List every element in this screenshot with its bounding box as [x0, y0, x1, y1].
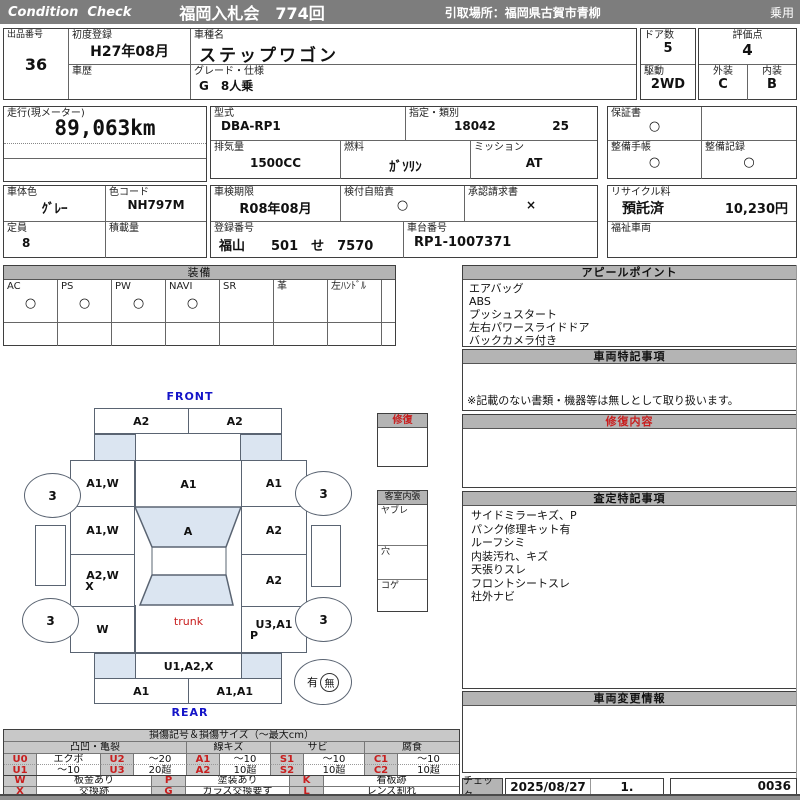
appeal-item: エアバッグ: [469, 282, 790, 295]
warranty-cell: 保証書 ○: [608, 107, 702, 140]
first-registration-label: 初度登録: [69, 29, 190, 41]
legend-desc: ～10: [398, 754, 459, 765]
maintenance-record-label: 整備記録: [702, 141, 796, 153]
change-info-title: 車両変更情報: [463, 692, 796, 706]
capacity-value: 8: [4, 236, 105, 250]
documents-table: 保証書 ○ 整備手帳 ○ 整備記録 ○: [607, 106, 797, 179]
check-count: 1.: [591, 779, 663, 794]
color-code-cell: 色コード NH797M: [106, 186, 206, 221]
panel-right-front-door: A2: [241, 506, 307, 555]
history-label: 車歴: [69, 65, 190, 77]
windshield-roof-rearwindow: A: [130, 505, 246, 610]
equipment-col-lhd: 左ﾊﾝﾄﾞﾙ: [328, 280, 382, 346]
equipment-table: 装備 AC ○ PS ○ PW ○: [3, 265, 396, 346]
equipment-label: NAVI: [166, 280, 219, 292]
legend-code: C1: [365, 754, 398, 765]
equipment-col-empty: [382, 280, 395, 346]
diagram-rear-label: REAR: [150, 706, 230, 719]
fuel-value: ｶﾞｿﾘﾝ: [341, 156, 470, 175]
rear-corner-left: [94, 653, 136, 679]
approval-value: ×: [465, 198, 597, 212]
insurance-value: ○: [341, 198, 464, 213]
lot-number-label: 出品番号: [4, 29, 68, 41]
color-code-label: 色コード: [106, 186, 206, 198]
equipment-col-navi: NAVI ○: [166, 280, 220, 346]
tire-front-right: 3: [295, 471, 352, 516]
inspection-cell: 車検期限 R08年08月: [211, 186, 341, 221]
equipment-label: PW: [112, 280, 165, 292]
registration-label: 登録番号: [211, 222, 403, 234]
score-table: 評価点 4 外装 C 内装 B: [698, 28, 797, 100]
vehicle-category: 乗用: [770, 4, 794, 21]
appeal-item: プッシュスタート: [469, 308, 790, 321]
inspection-label: 車検期限: [211, 186, 340, 198]
equipment-label: 左ﾊﾝﾄﾞﾙ: [328, 280, 381, 292]
cabin-lining-box: 客室内張 ヤブレ 穴 コゲ: [377, 490, 428, 612]
check-date: 2025/08/27: [506, 779, 591, 794]
repair-history-marker: 有 無: [294, 659, 352, 705]
legend-group-scratch: 線キズ: [187, 742, 271, 753]
body-color-cell: 車体色 ｸﾞﾚｰ: [4, 186, 106, 221]
score-label: 評価点: [699, 29, 796, 41]
legend-desc: ～10: [220, 754, 271, 765]
legend-desc: エクボ: [37, 754, 101, 765]
recycle-table: リサイクル料 預託済 10,230円 福祉車両: [607, 185, 797, 258]
auction-title: 福岡入札会 774回: [179, 0, 324, 24]
sheet-number-box: 0036: [670, 778, 797, 795]
cabin-row-tear: ヤブレ: [378, 505, 427, 517]
appeal-points-section: アピールポイント エアバッグ ABS プッシュスタート 左右パワースライドドア …: [462, 265, 797, 347]
auction-condition-sheet: Condition Check 福岡入札会 774回 引取場所：福岡県古賀市青柳…: [0, 0, 800, 800]
legend-code: U2: [101, 754, 134, 765]
transmission-cell: ミッション AT: [471, 141, 597, 179]
assessment-item: パンク修理キット有: [471, 523, 788, 537]
repair-history-yes: 有: [307, 674, 318, 690]
repair-content-section: 修復内容: [462, 414, 797, 488]
load-label: 積載量: [106, 222, 206, 234]
panel-code: U3,A1: [256, 619, 293, 630]
recycle-label: リサイクル料: [608, 186, 796, 198]
doors-label: ドア数: [641, 29, 695, 41]
panel-rear-bumper-left: A1: [94, 678, 188, 704]
model-code-cell: 型式 DBA-RP1: [211, 107, 406, 140]
equipment-label: AC: [4, 280, 57, 292]
equipment-label: SR: [220, 280, 273, 292]
odometer-box: 走行(現メーター) 89,063km: [3, 106, 207, 182]
interior-grade-value: B: [748, 77, 796, 92]
exterior-grade-label: 外装: [699, 65, 747, 77]
model-code-value: DBA-RP1: [211, 119, 405, 133]
appeal-item: 左右パワースライドドア: [469, 321, 790, 334]
color-code-value: NH797M: [106, 198, 206, 212]
page-right-border: [796, 265, 797, 778]
diagram-front-label: FRONT: [150, 390, 230, 403]
windshield-code: A: [184, 525, 193, 538]
legend-group-corrosion: 腐食: [365, 742, 459, 753]
maintenance-record-value: ○: [702, 155, 796, 170]
rear-window-shape: [140, 575, 233, 605]
front-bumper: A2 A2: [94, 408, 282, 434]
warranty-value: ○: [608, 119, 701, 134]
special-notes-title: 車両特記事項: [463, 350, 796, 364]
model-code-label: 型式: [211, 107, 405, 119]
lot-number-value: 36: [4, 55, 68, 74]
legend-desc: 塗装あり: [186, 776, 290, 786]
displacement-label: 排気量: [211, 141, 340, 153]
legend-group-rust: サビ: [271, 742, 365, 753]
panel-rear-bumper-right: A1,A1: [188, 678, 283, 704]
cabin-row-burn: コゲ: [378, 580, 427, 592]
equipment-col-ps: PS ○: [58, 280, 112, 346]
panel-front-bumper-left: A2: [94, 408, 188, 434]
legend-code: K: [290, 776, 324, 786]
equipment-col-sr: SR: [220, 280, 274, 346]
assessment-notes-section: 査定特記事項 サイドミラーキズ、P パンク修理キット有 ルーフシミ 内装汚れ、キ…: [462, 491, 797, 689]
class-category: 25: [552, 119, 569, 133]
trunk-label: trunk: [136, 615, 241, 628]
score-value: 4: [699, 41, 796, 59]
grade-value: G 8人乗: [191, 77, 636, 94]
assessment-notes-title: 査定特記事項: [463, 492, 796, 506]
capacity-cell: 定員 8: [4, 222, 106, 258]
legend-code: W: [4, 776, 37, 786]
check-date-box: 2025/08/27 1.: [505, 778, 664, 795]
drive-value: 2WD: [641, 77, 695, 92]
first-registration-value: H27年08月: [69, 41, 190, 61]
repair-mini-box: 修復: [377, 413, 428, 467]
equipment-label: 革: [274, 280, 327, 292]
equipment-label: PS: [58, 280, 111, 292]
panel-left-rear-door: A2,W X: [70, 554, 135, 607]
legend-desc: 板金あり: [37, 776, 152, 786]
assessment-item: フロントシートスレ: [471, 577, 788, 591]
inspection-value: R08年08月: [211, 198, 340, 217]
equipment-col-ac: AC ○: [4, 280, 58, 346]
appeal-item: ABS: [469, 295, 790, 308]
class-cell: 指定・類別 18042 25: [406, 107, 597, 140]
tire-front-left: 3: [24, 473, 81, 518]
assessment-item: 天張りスレ: [471, 563, 788, 577]
equipment-value: ○: [58, 296, 111, 311]
rear-bumper: A1 A1,A1: [94, 678, 282, 704]
model-cell: 車種名 ステップワゴン グレード・仕様 G 8人乗: [191, 29, 636, 99]
change-info-section: 車両変更情報: [462, 691, 797, 773]
brand-logo: Condition Check: [8, 5, 131, 20]
exterior-grade-value: C: [699, 77, 747, 92]
damage-legend-table: 損傷記号＆損傷サイズ（～最大cm） 凸凹・亀裂 線キズ サビ 腐食 U0 エクボ…: [3, 729, 460, 777]
documents-empty-cell: [702, 107, 796, 140]
legend-desc: 看板跡: [324, 776, 459, 786]
doors-value: 5: [641, 41, 695, 56]
equipment-value: ○: [112, 296, 165, 311]
registration-value: 福山 501 せ 7570: [211, 235, 403, 254]
legend-row-3: W 板金あり P 塗装あり K 看板跡: [4, 776, 459, 786]
drive-label: 駆動: [641, 65, 695, 77]
right-step-rect: [311, 525, 341, 587]
displacement-cell: 排気量 1500CC: [211, 141, 341, 179]
special-notes-section: 車両特記事項 ※記載のない書類・機器等は無しとして取り扱います。: [462, 349, 797, 411]
rear-corner-right: [240, 653, 282, 679]
legend-code: P: [152, 776, 186, 786]
lot-number-cell: 出品番号 36: [4, 29, 69, 99]
chassis-value: RP1-1007371: [404, 235, 597, 250]
first-registration-cell: 初度登録 H27年08月 車歴: [69, 29, 191, 99]
legend-group-dent: 凸凹・亀裂: [4, 742, 187, 753]
equipment-col-leather: 革: [274, 280, 328, 346]
repair-content-title: 修復内容: [463, 415, 796, 429]
legend-code: S1: [271, 754, 304, 765]
legend-desc: ～10: [304, 754, 365, 765]
legend-code: U0: [4, 754, 37, 765]
equipment-title: 装備: [4, 266, 395, 280]
cabin-row-hole: 穴: [378, 546, 427, 558]
model-label: 車種名: [191, 29, 636, 41]
insurance-cell: 検付自賠責 ○: [341, 186, 465, 221]
welfare-label: 福祉車両: [608, 222, 796, 234]
fuel-label: 燃料: [341, 141, 470, 153]
check-label-cell: チェック: [462, 778, 503, 795]
assessment-item: 社外ナビ: [471, 590, 788, 604]
engine-table: 型式 DBA-RP1 指定・類別 18042 25 排気量 1500CC 燃料 …: [210, 106, 598, 179]
assessment-item: 内装汚れ、キズ: [471, 550, 788, 564]
legend-group-row: 凸凹・亀裂 線キズ サビ 腐食: [4, 741, 459, 753]
title-bar: Condition Check 福岡入札会 774回 引取場所：福岡県古賀市青柳…: [0, 0, 800, 24]
panel-hood: A1: [135, 460, 242, 508]
displacement-value: 1500CC: [211, 156, 340, 170]
panel-code: A2,W: [86, 570, 118, 581]
exterior-grade-cell: 外装 C: [699, 65, 748, 100]
transmission-value: AT: [471, 156, 597, 170]
chassis-cell: 車台番号 RP1-1007371: [404, 222, 597, 258]
equipment-col-pw: PW ○: [112, 280, 166, 346]
approval-cell: 承認請求書 ×: [465, 186, 597, 221]
maintenance-book-value: ○: [608, 155, 701, 170]
panel-left-quarter: W: [70, 606, 135, 653]
color-capacity-table: 車体色 ｸﾞﾚｰ 色コード NH797M 定員 8 積載量: [3, 185, 207, 258]
chassis-label: 車台番号: [404, 222, 597, 234]
maintenance-book-cell: 整備手帳 ○: [608, 141, 702, 179]
front-corner-right: [240, 434, 282, 461]
panel-right-rear-door: A2: [241, 554, 307, 607]
cabin-lining-title: 客室内張: [378, 491, 427, 505]
maintenance-record-cell: 整備記録 ○: [702, 141, 796, 179]
panel-code-line2: X: [85, 581, 93, 592]
front-corner-left: [94, 434, 136, 461]
tire-rear-right: 3: [295, 597, 352, 642]
body-color-label: 車体色: [4, 186, 105, 198]
approval-label: 承認請求書: [465, 186, 597, 198]
assessment-item: サイドミラーキズ、P: [471, 509, 788, 523]
tire-rear-left: 3: [22, 598, 79, 643]
body-color-value: ｸﾞﾚｰ: [4, 198, 105, 217]
vehicle-main-table: 出品番号 36 初度登録 H27年08月 車歴 車種名 ステップワゴン グレード…: [3, 28, 637, 100]
registration-cell: 登録番号 福山 501 せ 7570: [211, 222, 404, 258]
repair-history-no-circled: 無: [320, 673, 339, 692]
model-value: ステップワゴン: [191, 41, 636, 66]
assessment-item: ルーフシミ: [471, 536, 788, 550]
maintenance-book-label: 整備手帳: [608, 141, 701, 153]
class-label: 指定・類別: [406, 107, 597, 119]
panel-left-front-door: A1,W: [70, 506, 135, 555]
equipment-value: ○: [4, 296, 57, 311]
repair-mini-title: 修復: [378, 414, 427, 428]
grade-label: グレード・仕様: [191, 65, 636, 77]
equipment-value: ○: [166, 296, 219, 311]
appeal-points-title: アピールポイント: [463, 266, 796, 280]
capacity-label: 定員: [4, 222, 105, 234]
interior-grade-label: 内装: [748, 65, 796, 77]
left-step-rect: [35, 525, 66, 586]
recycle-status: 預託済: [622, 198, 664, 218]
sheet-number: 0036: [671, 779, 796, 794]
panel-front-bumper-right: A2: [188, 408, 283, 434]
warranty-label: 保証書: [608, 107, 701, 119]
interior-grade-cell: 内装 B: [748, 65, 796, 100]
recycle-fee: 10,230円: [725, 198, 788, 218]
appeal-item: バックカメラ付き: [469, 334, 790, 347]
pickup-location: 引取場所：福岡県古賀市青柳: [445, 4, 601, 21]
panel-rear-gate: U1,A2,X: [135, 653, 242, 679]
legend-title: 損傷記号＆損傷サイズ（～最大cm）: [4, 730, 459, 741]
insurance-label: 検付自賠責: [341, 186, 464, 198]
legend-desc: ～20: [134, 754, 187, 765]
class-number: 18042: [454, 119, 496, 133]
load-cell: 積載量: [106, 222, 206, 258]
fuel-cell: 燃料 ｶﾞｿﾘﾝ: [341, 141, 471, 179]
legend-row-1: U0 エクボ U2 ～20 A1 ～10 S1 ～10 C1 ～10: [4, 753, 459, 765]
transmission-label: ミッション: [471, 141, 597, 153]
special-notes-footnote: ※記載のない書類・機器等は無しとして取り扱います。: [467, 392, 739, 408]
panel-code-line2: P: [250, 630, 258, 641]
page-bottom-bar: [0, 794, 800, 800]
legend-code: A1: [187, 754, 220, 765]
inspection-table: 車検期限 R08年08月 検付自賠責 ○ 承認請求書 × 登録番号 福山 501…: [210, 185, 598, 258]
odometer-value: 89,063km: [4, 116, 206, 140]
panel-trunk: trunk: [135, 605, 242, 653]
doors-drive-table: ドア数 5 駆動 2WD: [640, 28, 696, 100]
